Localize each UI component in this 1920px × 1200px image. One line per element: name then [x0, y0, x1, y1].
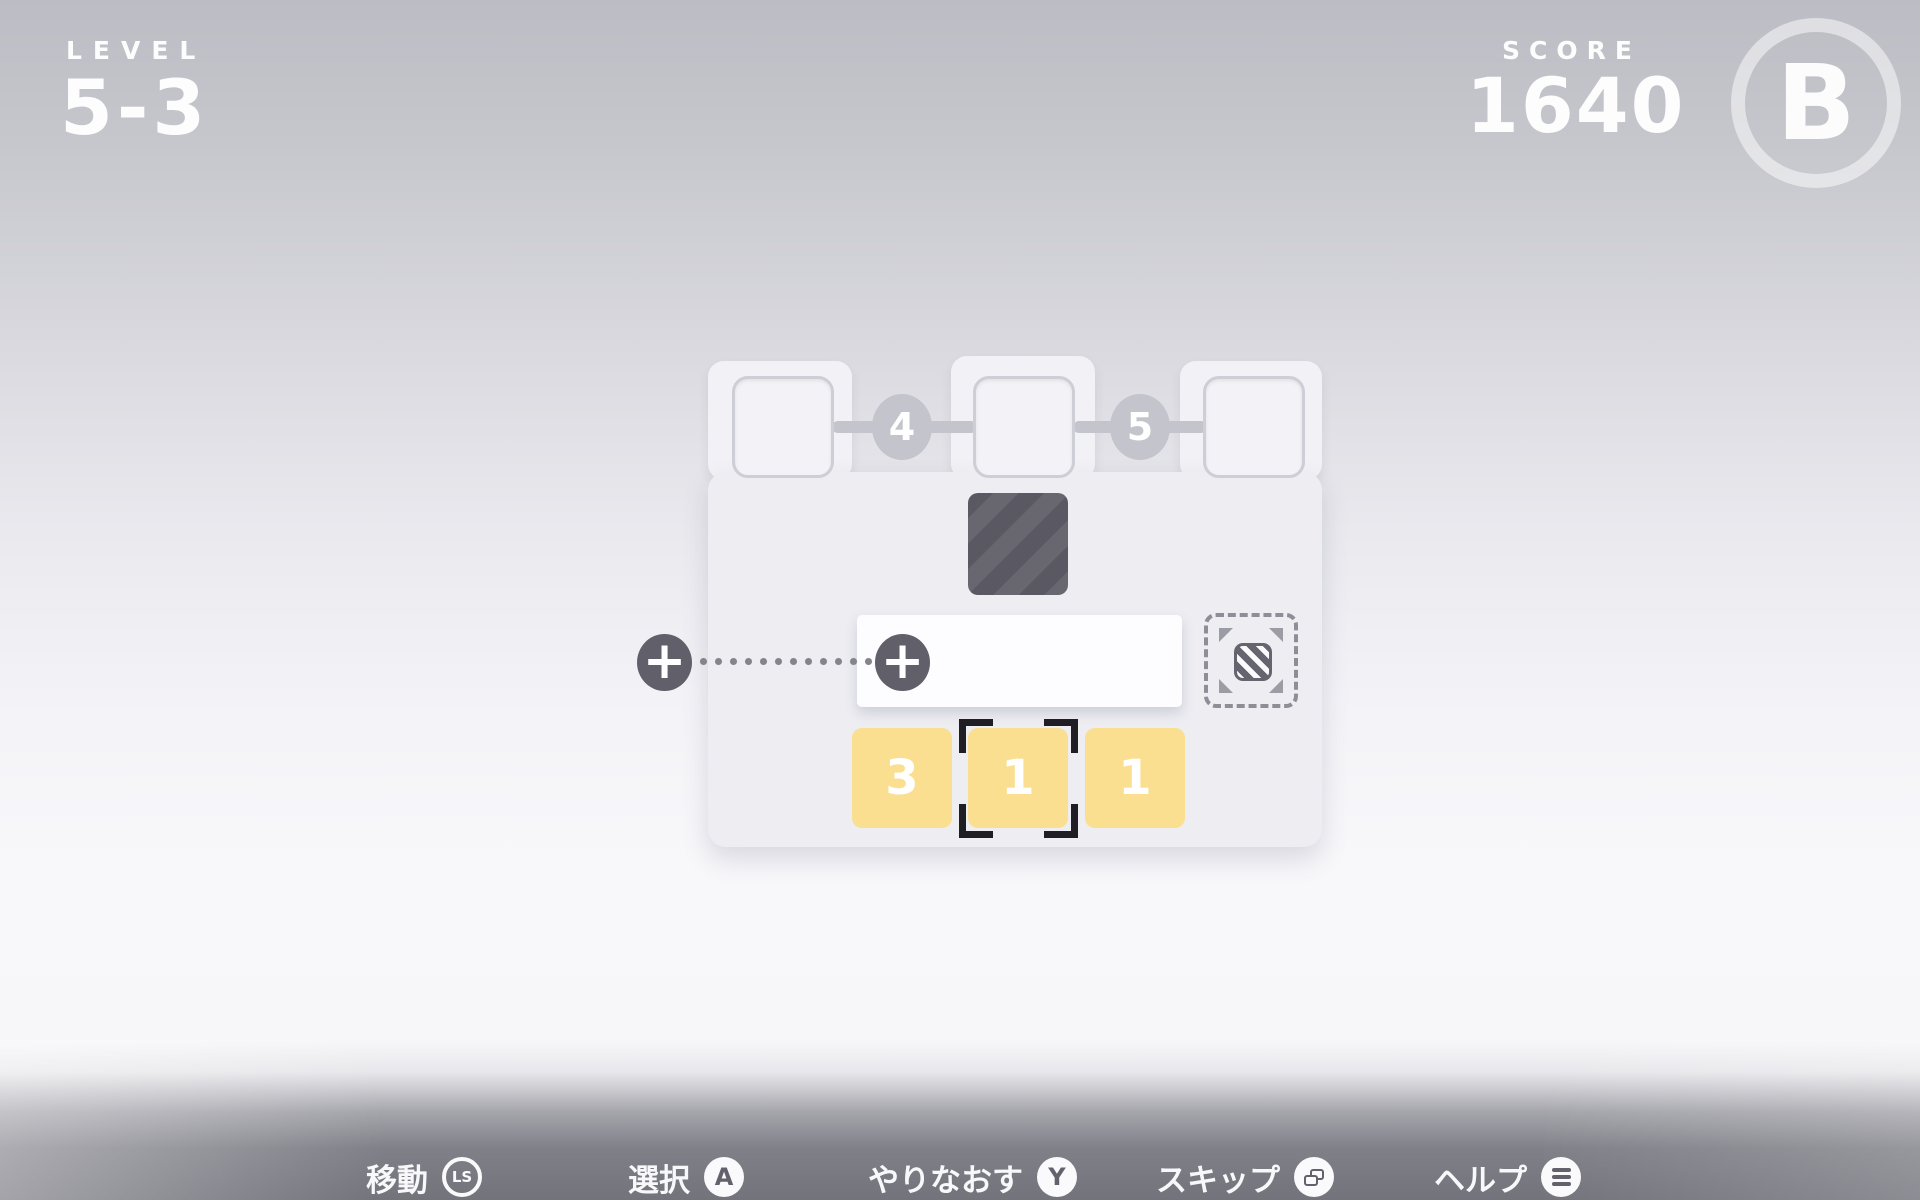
button-y-icon: Y: [1037, 1157, 1077, 1197]
corner-arrow-bottom-right-icon: [1269, 679, 1283, 693]
button-a-icon: A: [704, 1157, 744, 1197]
plus-icon: +: [881, 635, 925, 687]
progress-slot-2[interactable]: [973, 376, 1075, 478]
corner-arrow-top-right-icon: [1269, 628, 1283, 642]
progress-slot-1[interactable]: [732, 376, 834, 478]
rank-letter: B: [1776, 51, 1855, 155]
hand-tile-3[interactable]: 1: [1085, 728, 1185, 828]
level-label: LEVEL: [66, 36, 206, 65]
hand-tile-value: 1: [1118, 750, 1151, 806]
control-move-label: 移動: [366, 1155, 428, 1200]
hand-tile-1[interactable]: 3: [852, 728, 952, 828]
connector-node-2: 5: [1110, 394, 1170, 460]
level-value: 5-3: [60, 70, 209, 146]
dotted-connector: [696, 657, 876, 666]
menu-lines-icon: [1541, 1157, 1581, 1197]
control-undo-label: やりなおす: [868, 1155, 1023, 1200]
striped-tile-icon: [1234, 643, 1272, 681]
game-screen: LEVEL 5-3 SCORE 1640 B 4 5 + + 3: [0, 0, 1920, 1200]
connector-value-2: 5: [1127, 405, 1153, 449]
connector-node-1: 4: [872, 394, 932, 460]
rank-badge: B: [1731, 18, 1901, 188]
left-stick-icon: LS: [442, 1157, 482, 1197]
corner-arrow-bottom-left-icon: [1219, 679, 1233, 693]
control-move[interactable]: 移動 LS: [366, 1156, 482, 1198]
hand-tile-2[interactable]: 1: [968, 728, 1068, 828]
slot-plus-button[interactable]: +: [875, 634, 930, 691]
control-help-label: ヘルプ: [1434, 1155, 1527, 1200]
corner-arrow-top-left-icon: [1219, 628, 1233, 642]
windows-stack-icon: [1294, 1157, 1334, 1197]
control-skip-label: スキップ: [1156, 1155, 1280, 1200]
hand-tile-value: 1: [1001, 750, 1034, 806]
discard-drop-zone[interactable]: [1204, 613, 1298, 708]
progress-slot-3[interactable]: [1203, 376, 1305, 478]
connector-value-1: 4: [889, 405, 915, 449]
control-select-label: 選択: [628, 1155, 690, 1200]
outer-plus-button[interactable]: +: [637, 634, 692, 691]
plus-icon: +: [643, 635, 687, 687]
mystery-tile[interactable]: [968, 493, 1068, 595]
control-help[interactable]: ヘルプ: [1434, 1156, 1581, 1198]
control-undo[interactable]: やりなおす Y: [868, 1156, 1077, 1198]
score-value: 1640: [1466, 68, 1686, 144]
control-select[interactable]: 選択 A: [628, 1156, 744, 1198]
hand-tile-value: 3: [885, 750, 918, 806]
control-skip[interactable]: スキップ: [1156, 1156, 1334, 1198]
